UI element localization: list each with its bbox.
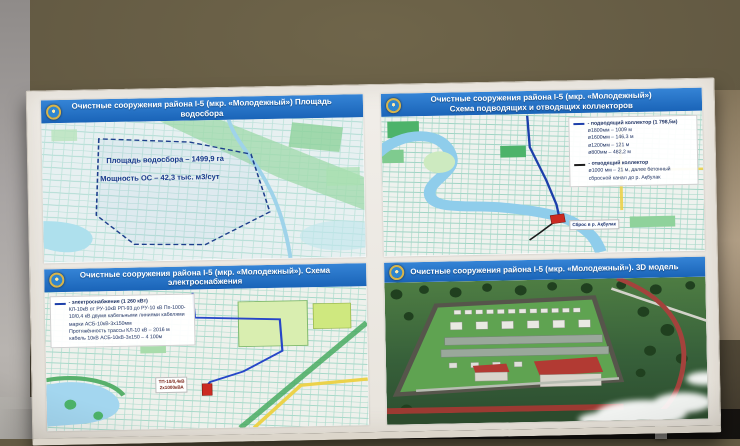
power-detail: КЛ-10кВ от РУ-10кВ РП-93 до РУ-10 кВ Пп-… — [69, 305, 190, 329]
collectors-legend: - подводящий коллектор (1 798,5м) ø1800м… — [568, 114, 698, 187]
collectors-map: - подводящий коллектор (1 798,5м) ø1800м… — [381, 111, 705, 256]
presentation-board: Очистные сооружения района I-5 (мкр. «Мо… — [26, 77, 722, 445]
wall-left — [0, 0, 30, 439]
discharge-collector-swatch — [574, 164, 585, 166]
power-cable-line: кабель 10кВ АСБ-10кВ-3х150 – 4 100м — [69, 334, 190, 344]
substation-site — [202, 383, 212, 395]
city-emblem-icon — [389, 264, 404, 279]
discharge-point-label: Сброс в р. Ақбулак — [569, 220, 619, 231]
watershed-map: Площадь водосбора – 1499,9 га Мощность О… — [41, 117, 365, 262]
panel-power: Очистные сооружения района I-5 (мкр. «Мо… — [44, 263, 369, 432]
panel-collectors-title: Очистные сооружения района I-5 (мкр. «Мо… — [430, 91, 651, 114]
poster-grid: Очистные сооружения района I-5 (мкр. «Мо… — [41, 88, 708, 432]
panel-watershed-title: Очистные сооружения района I-5 (мкр. «Мо… — [63, 97, 341, 122]
watershed-area-label: Площадь водосбора – 1499,9 га — [106, 153, 224, 164]
panel-power-title: Очистные сооружения района I-5 (мкр. «Мо… — [66, 265, 344, 290]
supply-collector-swatch — [574, 123, 585, 125]
substation-label-line2: 2х1000кВА — [159, 385, 185, 391]
city-emblem-icon — [46, 104, 61, 119]
power-legend: - электроснабжение (1 260 кВт) КЛ-10кВ о… — [49, 293, 195, 347]
model-3d-svg — [384, 276, 708, 425]
power-map: - электроснабжение (1 260 кВт) КЛ-10кВ о… — [45, 286, 369, 431]
model-3d-render — [384, 276, 708, 425]
city-emblem-icon — [49, 273, 64, 288]
city-emblem-icon — [385, 98, 400, 113]
treatment-capacity-label: Мощность ОС – 42,3 тыс. м3/сут — [100, 172, 219, 183]
watershed-map-svg — [41, 117, 365, 262]
treatment-plant-site — [550, 214, 565, 224]
panel-3d-model-title: Очистные сооружения района I-5 (мкр. «Мо… — [410, 262, 678, 277]
substation-label: ТП-10/0,4кВ 2х1000кВА — [155, 377, 187, 393]
panel-3d-model: Очистные сооружения района I-5 (мкр. «Мо… — [384, 256, 709, 425]
supply-detail-4: ø800мм – 482,2 м — [588, 148, 693, 157]
panel-watershed: Очистные сооружения района I-5 (мкр. «Мо… — [41, 94, 366, 263]
power-line-swatch — [55, 302, 66, 304]
discharge-detail-2: сбросной канал до р. Ақбулак — [589, 173, 694, 182]
panel-collectors: Очистные сооружения района I-5 (мкр. «Мо… — [380, 88, 705, 257]
